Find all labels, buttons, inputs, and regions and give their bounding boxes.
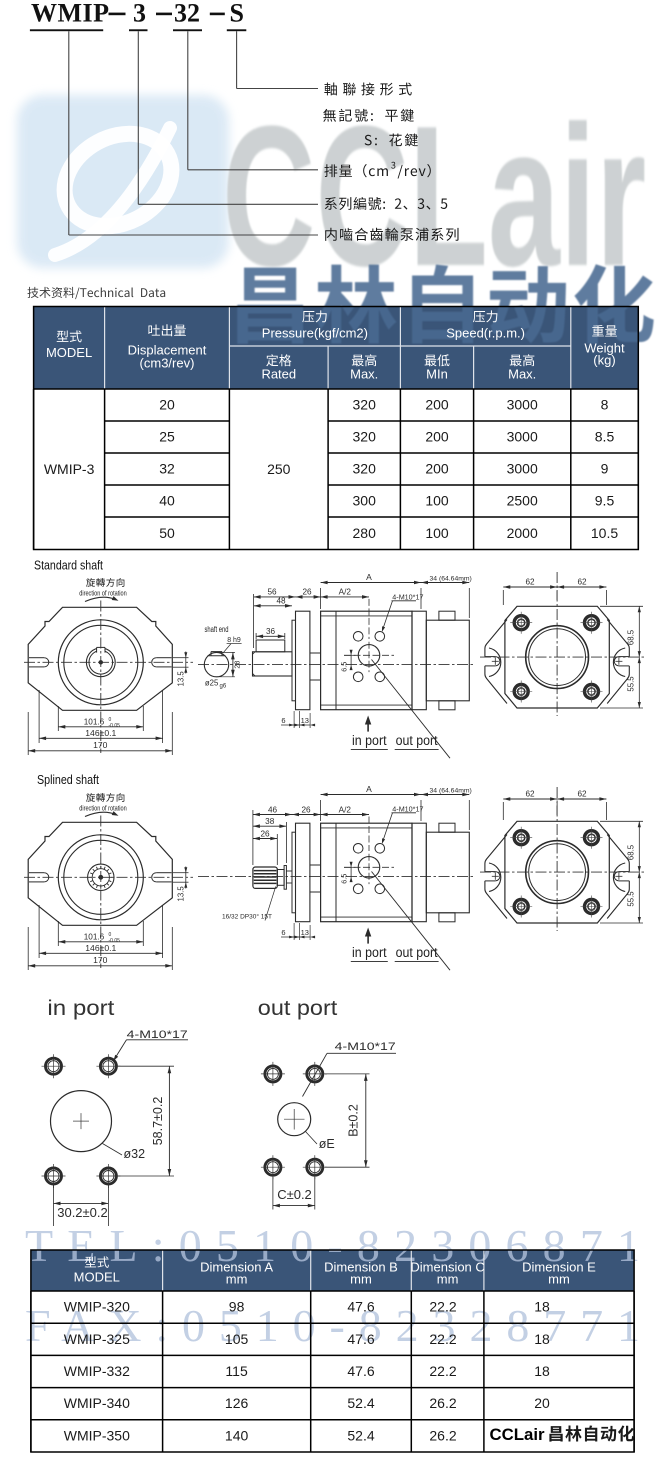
svg-text:Pressure(kgf/cm2): Pressure(kgf/cm2) <box>262 325 368 340</box>
svg-text:WMIP-320: WMIP-320 <box>64 1299 130 1315</box>
svg-text:62: 62 <box>577 578 587 587</box>
svg-text:20: 20 <box>159 397 175 413</box>
svg-text:6: 6 <box>281 716 285 725</box>
svg-text:100: 100 <box>425 525 449 541</box>
svg-text:101.6: 101.6 <box>84 717 105 726</box>
svg-text:C±0.2: C±0.2 <box>277 1187 312 1202</box>
svg-text:(cm3/rev): (cm3/rev) <box>140 356 195 371</box>
svg-text:36: 36 <box>266 627 276 636</box>
svg-text:62: 62 <box>525 578 535 587</box>
svg-text:mm: mm <box>548 1272 570 1287</box>
svg-text:3000: 3000 <box>507 397 538 413</box>
svg-text:Rated: Rated <box>261 366 296 381</box>
svg-text:62: 62 <box>525 790 535 799</box>
svg-text:MODEL: MODEL <box>74 1269 120 1284</box>
svg-text:30.2±0.2: 30.2±0.2 <box>57 1205 108 1220</box>
svg-text:in port: in port <box>47 997 114 1020</box>
svg-text:200: 200 <box>425 429 449 445</box>
svg-text:3000: 3000 <box>507 461 538 477</box>
svg-text:mm: mm <box>226 1272 248 1287</box>
svg-text:170: 170 <box>93 955 108 965</box>
svg-text:16/32 DP30° 15T: 16/32 DP30° 15T <box>222 913 272 921</box>
svg-text:68.5: 68.5 <box>626 844 635 860</box>
svg-text:8.5: 8.5 <box>595 429 615 445</box>
svg-text:øE: øE <box>319 1137 335 1151</box>
svg-text:300: 300 <box>353 493 377 509</box>
svg-text:40: 40 <box>159 493 175 509</box>
svg-text:Splined shaft: Splined shaft <box>37 772 99 787</box>
svg-text:3: 3 <box>133 0 146 28</box>
svg-text:200: 200 <box>425 461 449 477</box>
svg-text:in port: in port <box>352 733 387 748</box>
svg-text:6: 6 <box>281 928 285 937</box>
svg-text:55.5: 55.5 <box>626 891 635 907</box>
svg-text:8 h9: 8 h9 <box>227 637 241 644</box>
svg-text:13: 13 <box>301 716 309 725</box>
svg-text:Standard shaft: Standard shaft <box>34 558 103 573</box>
svg-text:WMIP-350: WMIP-350 <box>64 1427 130 1443</box>
svg-text:26: 26 <box>260 829 270 838</box>
svg-text:4-M10*17: 4-M10*17 <box>335 1041 396 1053</box>
svg-text:170: 170 <box>93 740 108 750</box>
svg-text:18: 18 <box>534 1363 550 1379</box>
svg-text:4-M10*17: 4-M10*17 <box>127 1029 188 1041</box>
svg-text:4-M10*17: 4-M10*17 <box>392 592 423 601</box>
svg-text:38: 38 <box>265 817 275 826</box>
svg-text:105: 105 <box>225 1331 249 1347</box>
svg-text:13: 13 <box>301 928 309 937</box>
svg-text:22.2: 22.2 <box>429 1363 456 1379</box>
svg-text:47.6: 47.6 <box>347 1363 374 1379</box>
svg-text:B±0.2: B±0.2 <box>347 1104 361 1137</box>
svg-text:62: 62 <box>577 790 587 799</box>
svg-text:28: 28 <box>233 661 242 669</box>
svg-text:2500: 2500 <box>507 493 538 509</box>
svg-text:18: 18 <box>534 1331 550 1347</box>
svg-text:47.6: 47.6 <box>347 1331 374 1347</box>
svg-text:48: 48 <box>276 597 286 606</box>
svg-text:34 (64.64mm): 34 (64.64mm) <box>430 575 472 582</box>
svg-text:4-M10*17: 4-M10*17 <box>392 804 423 813</box>
svg-text:52.4: 52.4 <box>347 1427 374 1443</box>
svg-text:A: A <box>366 572 372 582</box>
svg-text:6.5: 6.5 <box>340 874 349 884</box>
svg-text:WMIP: WMIP <box>31 0 110 28</box>
svg-text:34 (64.64mm): 34 (64.64mm) <box>430 787 472 794</box>
svg-text:22.2: 22.2 <box>429 1331 456 1347</box>
svg-text:101.6: 101.6 <box>84 932 105 941</box>
svg-text:32: 32 <box>159 461 175 477</box>
svg-text:MIn: MIn <box>426 366 448 381</box>
svg-text:13.5: 13.5 <box>176 886 185 902</box>
svg-text:WMIP-325: WMIP-325 <box>64 1331 130 1347</box>
svg-text:320: 320 <box>353 429 377 445</box>
svg-text:98: 98 <box>229 1299 245 1315</box>
svg-text:25: 25 <box>159 429 175 445</box>
svg-text:126: 126 <box>225 1395 249 1411</box>
svg-text:WMIP-340: WMIP-340 <box>64 1395 130 1411</box>
svg-text:52.4: 52.4 <box>347 1395 374 1411</box>
svg-text:58.7±0.2: 58.7±0.2 <box>151 1097 165 1146</box>
svg-text:A: A <box>366 784 372 794</box>
svg-text:55.5: 55.5 <box>626 676 635 692</box>
svg-text:200: 200 <box>425 397 449 413</box>
svg-text:18: 18 <box>534 1299 550 1315</box>
svg-text:22.2: 22.2 <box>429 1299 456 1315</box>
svg-text:50: 50 <box>159 525 175 541</box>
svg-text:shaft end: shaft end <box>205 625 229 634</box>
svg-text:9.5: 9.5 <box>595 493 615 509</box>
svg-text:26.2: 26.2 <box>429 1395 456 1411</box>
svg-text:(kg): (kg) <box>593 353 615 368</box>
svg-text:280: 280 <box>353 525 377 541</box>
svg-text:250: 250 <box>267 461 291 477</box>
svg-text:CCLair: CCLair <box>490 1425 545 1444</box>
svg-text:100: 100 <box>425 493 449 509</box>
svg-text:47.6: 47.6 <box>347 1299 374 1315</box>
svg-text:68.5: 68.5 <box>626 629 635 645</box>
svg-text:13.5: 13.5 <box>176 671 185 687</box>
svg-text:26.2: 26.2 <box>429 1427 456 1443</box>
svg-text:direction of rotation: direction of rotation <box>79 589 127 598</box>
svg-text:32: 32 <box>174 0 200 28</box>
svg-text:ø32: ø32 <box>124 1147 146 1161</box>
svg-text:320: 320 <box>353 461 377 477</box>
svg-text:6.5: 6.5 <box>340 662 349 672</box>
svg-text:46: 46 <box>268 805 278 814</box>
svg-text:146±0.1: 146±0.1 <box>85 728 116 738</box>
svg-text:9: 9 <box>601 461 609 477</box>
svg-text:WMIP-332: WMIP-332 <box>64 1363 130 1379</box>
svg-text:8: 8 <box>601 397 609 413</box>
svg-text:320: 320 <box>353 397 377 413</box>
svg-text:Max.: Max. <box>350 366 378 381</box>
svg-text:146±0.1: 146±0.1 <box>85 943 116 953</box>
svg-text:ø25: ø25 <box>205 678 219 687</box>
svg-text:20: 20 <box>534 1395 550 1411</box>
svg-text:10.5: 10.5 <box>591 525 618 541</box>
svg-text:56: 56 <box>267 588 277 597</box>
svg-text:Max.: Max. <box>508 366 536 381</box>
svg-text:A/2: A/2 <box>339 588 352 597</box>
svg-text:WMIP-3: WMIP-3 <box>44 461 95 477</box>
svg-text:26: 26 <box>302 588 312 597</box>
svg-text:Speed(r.p.m.): Speed(r.p.m.) <box>446 325 525 340</box>
svg-text:A/2: A/2 <box>339 805 352 814</box>
svg-text:3000: 3000 <box>507 429 538 445</box>
svg-text:S: S <box>230 0 244 28</box>
svg-text:in port: in port <box>352 945 387 960</box>
svg-text:2000: 2000 <box>507 525 538 541</box>
svg-text:mm: mm <box>437 1272 459 1287</box>
svg-text:MODEL: MODEL <box>46 345 92 360</box>
svg-text:out port: out port <box>258 997 338 1020</box>
svg-text:direction of rotation: direction of rotation <box>79 804 127 813</box>
svg-text:mm: mm <box>350 1272 372 1287</box>
svg-text:g6: g6 <box>220 683 227 689</box>
svg-text:115: 115 <box>225 1363 248 1379</box>
svg-text:26: 26 <box>301 805 311 814</box>
svg-text:140: 140 <box>225 1427 249 1443</box>
